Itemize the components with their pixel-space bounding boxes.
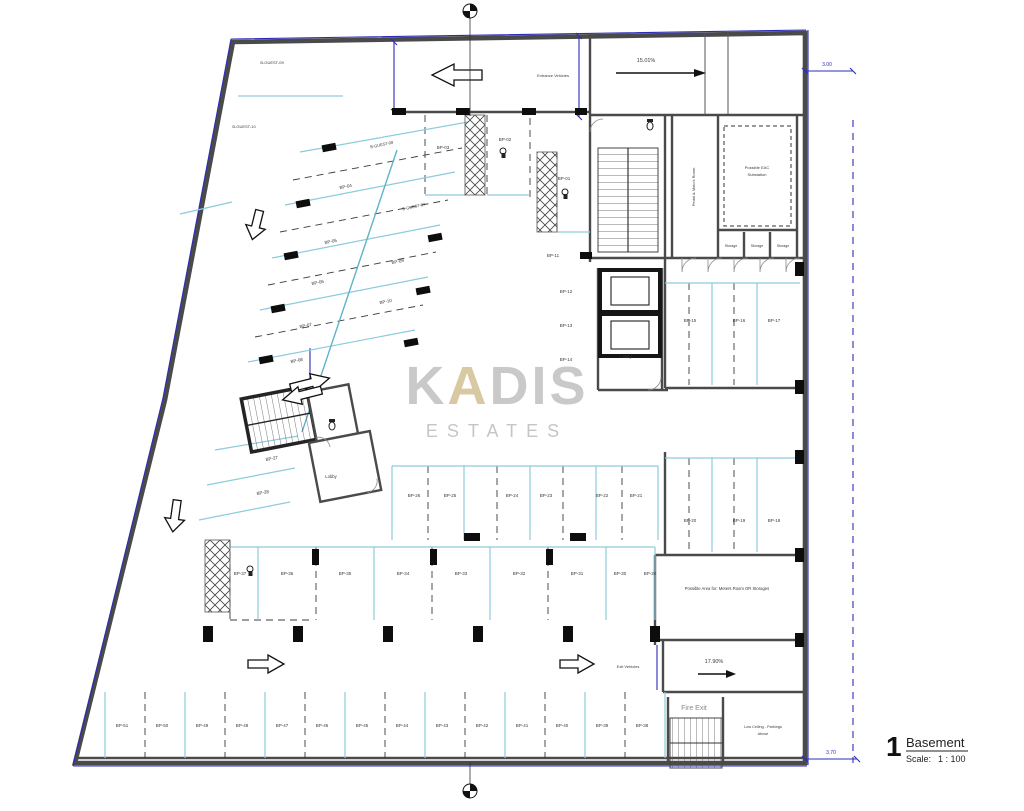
- elevator-shafts: [600, 270, 660, 356]
- parking-label: BP-19: [733, 518, 746, 523]
- ev-charger-icon: [562, 189, 568, 199]
- ev-charger-icon: [247, 566, 253, 576]
- parking-label: BP-20: [684, 518, 697, 523]
- basement-floor-plan-drawing: KADIS ESTATES 1 Basement Scale: 1 : 100 …: [0, 0, 1024, 811]
- parking-label: BP-17: [768, 318, 781, 323]
- parking-label: B-GUEST-10: [232, 124, 256, 129]
- lobby-label: Lobby: [325, 474, 337, 479]
- stair-fire-exit: [670, 718, 722, 768]
- parking-label: BP-14: [560, 357, 573, 362]
- eac-substation-label: Substation: [748, 172, 767, 177]
- parking-label: BP-25: [444, 493, 457, 498]
- parking-label: BP-07: [299, 322, 313, 330]
- parking-label: BP-40: [556, 723, 569, 728]
- dimension-label: 3.70: [826, 750, 836, 756]
- parking-label: BP-02: [499, 137, 512, 142]
- parking-label: BP-43: [436, 723, 449, 728]
- parking-label: BP-34: [397, 571, 410, 576]
- arrow-left-icon: [432, 64, 482, 86]
- parking-label: BP-29: [644, 571, 657, 576]
- parking-label: BP-36: [281, 571, 294, 576]
- toilet-icon: [647, 119, 653, 130]
- parking-label: BP-42: [476, 723, 489, 728]
- parking-label: BP-33: [455, 571, 468, 576]
- toilet-icon: [329, 419, 335, 430]
- ramp-arrow-icon: [616, 69, 706, 77]
- fixtures: [247, 119, 653, 576]
- parking-label: BP-48: [236, 723, 249, 728]
- arrow-down-icon: [163, 499, 187, 533]
- fire-exit-label: Fire Exit: [681, 705, 707, 712]
- parking-label: BP-46: [316, 723, 329, 728]
- parking-label: BP-09: [391, 258, 405, 266]
- parking-label: B-GUEST-09: [260, 60, 284, 65]
- low-ceiling-label: Low Ceiling - Parkings: [744, 725, 782, 729]
- parking-label: BP-04: [339, 183, 353, 191]
- parking-label: BP-44: [396, 723, 409, 728]
- parking-label: BP-23: [540, 493, 553, 498]
- parking-label: BP-41: [516, 723, 529, 728]
- parking-label: BP-22: [596, 493, 609, 498]
- parking-label: BP-37: [234, 571, 247, 576]
- parking-label: BP-15: [684, 318, 697, 323]
- watermark: KADIS ESTATES: [405, 356, 588, 441]
- parking-label: BP-18: [768, 518, 781, 523]
- meters-room-label: Possible Area for: Meters Room OR Storag…: [685, 586, 769, 591]
- parking-label: BP-30: [614, 571, 627, 576]
- section-marker-icon: [463, 762, 477, 798]
- parking-label: BP-27: [265, 455, 279, 462]
- parking-label: BP-35: [339, 571, 352, 576]
- parking-label: BP-10: [379, 298, 393, 306]
- stair-core-northeast: [598, 148, 658, 252]
- parking-label: BP-06: [311, 279, 325, 287]
- arrow-right-icon: [248, 655, 284, 673]
- sheet-name: Basement: [906, 735, 965, 750]
- title-block: 1 Basement Scale: 1 : 100: [886, 731, 968, 764]
- parking-label: BP-21: [630, 493, 643, 498]
- entrance-vehicles-label: Entrance Vehicles: [537, 73, 569, 78]
- low-ceiling-label: Above: [758, 732, 769, 736]
- parking-label: BP-51: [116, 723, 129, 728]
- parking-label: BP-31: [571, 571, 584, 576]
- parking-label: BP-50: [156, 723, 169, 728]
- eac-substation-label: Possible EAC: [745, 165, 770, 170]
- dimension-label: 3.00: [822, 62, 832, 68]
- exit-ramp-slope: 17.90%: [705, 659, 724, 665]
- entrance-ramp-slope: 15.01%: [637, 58, 656, 64]
- storage-label: Storage: [777, 244, 790, 248]
- watermark-kadis: KADIS: [405, 356, 588, 416]
- parking-label: BP-45: [356, 723, 369, 728]
- arrow-down-icon: [243, 208, 270, 242]
- storage-label: Storage: [725, 244, 738, 248]
- floor-plan-page: KADIS ESTATES 1 Basement Scale: 1 : 100 …: [0, 0, 1024, 811]
- storage-label: Storage: [751, 244, 764, 248]
- parking-label: BP-13: [560, 323, 573, 328]
- scale-label: Scale:: [906, 754, 931, 764]
- parking-label: BP-24: [506, 493, 519, 498]
- parking-label: BP-28: [256, 489, 270, 496]
- scale-value: 1 : 100: [938, 754, 966, 764]
- parking-label: BP-49: [196, 723, 209, 728]
- parking-label: BP-11: [547, 253, 560, 258]
- exit-vehicles-label: Exit Vehicles: [617, 664, 640, 669]
- arrow-right-icon: [560, 655, 594, 673]
- section-marker-icon: [463, 4, 477, 116]
- parking-label: BP-01: [558, 176, 571, 181]
- parking-label: BP-12: [560, 289, 573, 294]
- parking-label: BP-32: [513, 571, 526, 576]
- moto-room-label: Pedal & Moto's Room: [691, 167, 696, 206]
- ev-charger-icon: [500, 148, 506, 158]
- ramp-arrow-icon: [698, 670, 736, 678]
- parking-label: BP-05: [324, 238, 338, 246]
- watermark-estates: ESTATES: [426, 421, 568, 441]
- lobby-label: Lobby: [620, 354, 632, 359]
- parking-label: BP-39: [596, 723, 609, 728]
- parking-label: BP-16: [733, 318, 746, 323]
- parking-label: B-GUEST-07: [402, 202, 427, 212]
- parking-label: BP-08: [290, 357, 304, 365]
- parking-label: BP-38: [636, 723, 649, 728]
- sheet-number: 1: [886, 731, 902, 762]
- parking-label: BP-03: [437, 145, 450, 150]
- parking-label: BP-47: [276, 723, 289, 728]
- parking-label: B-GUEST-08: [370, 140, 395, 150]
- parking-label: BP-26: [408, 493, 421, 498]
